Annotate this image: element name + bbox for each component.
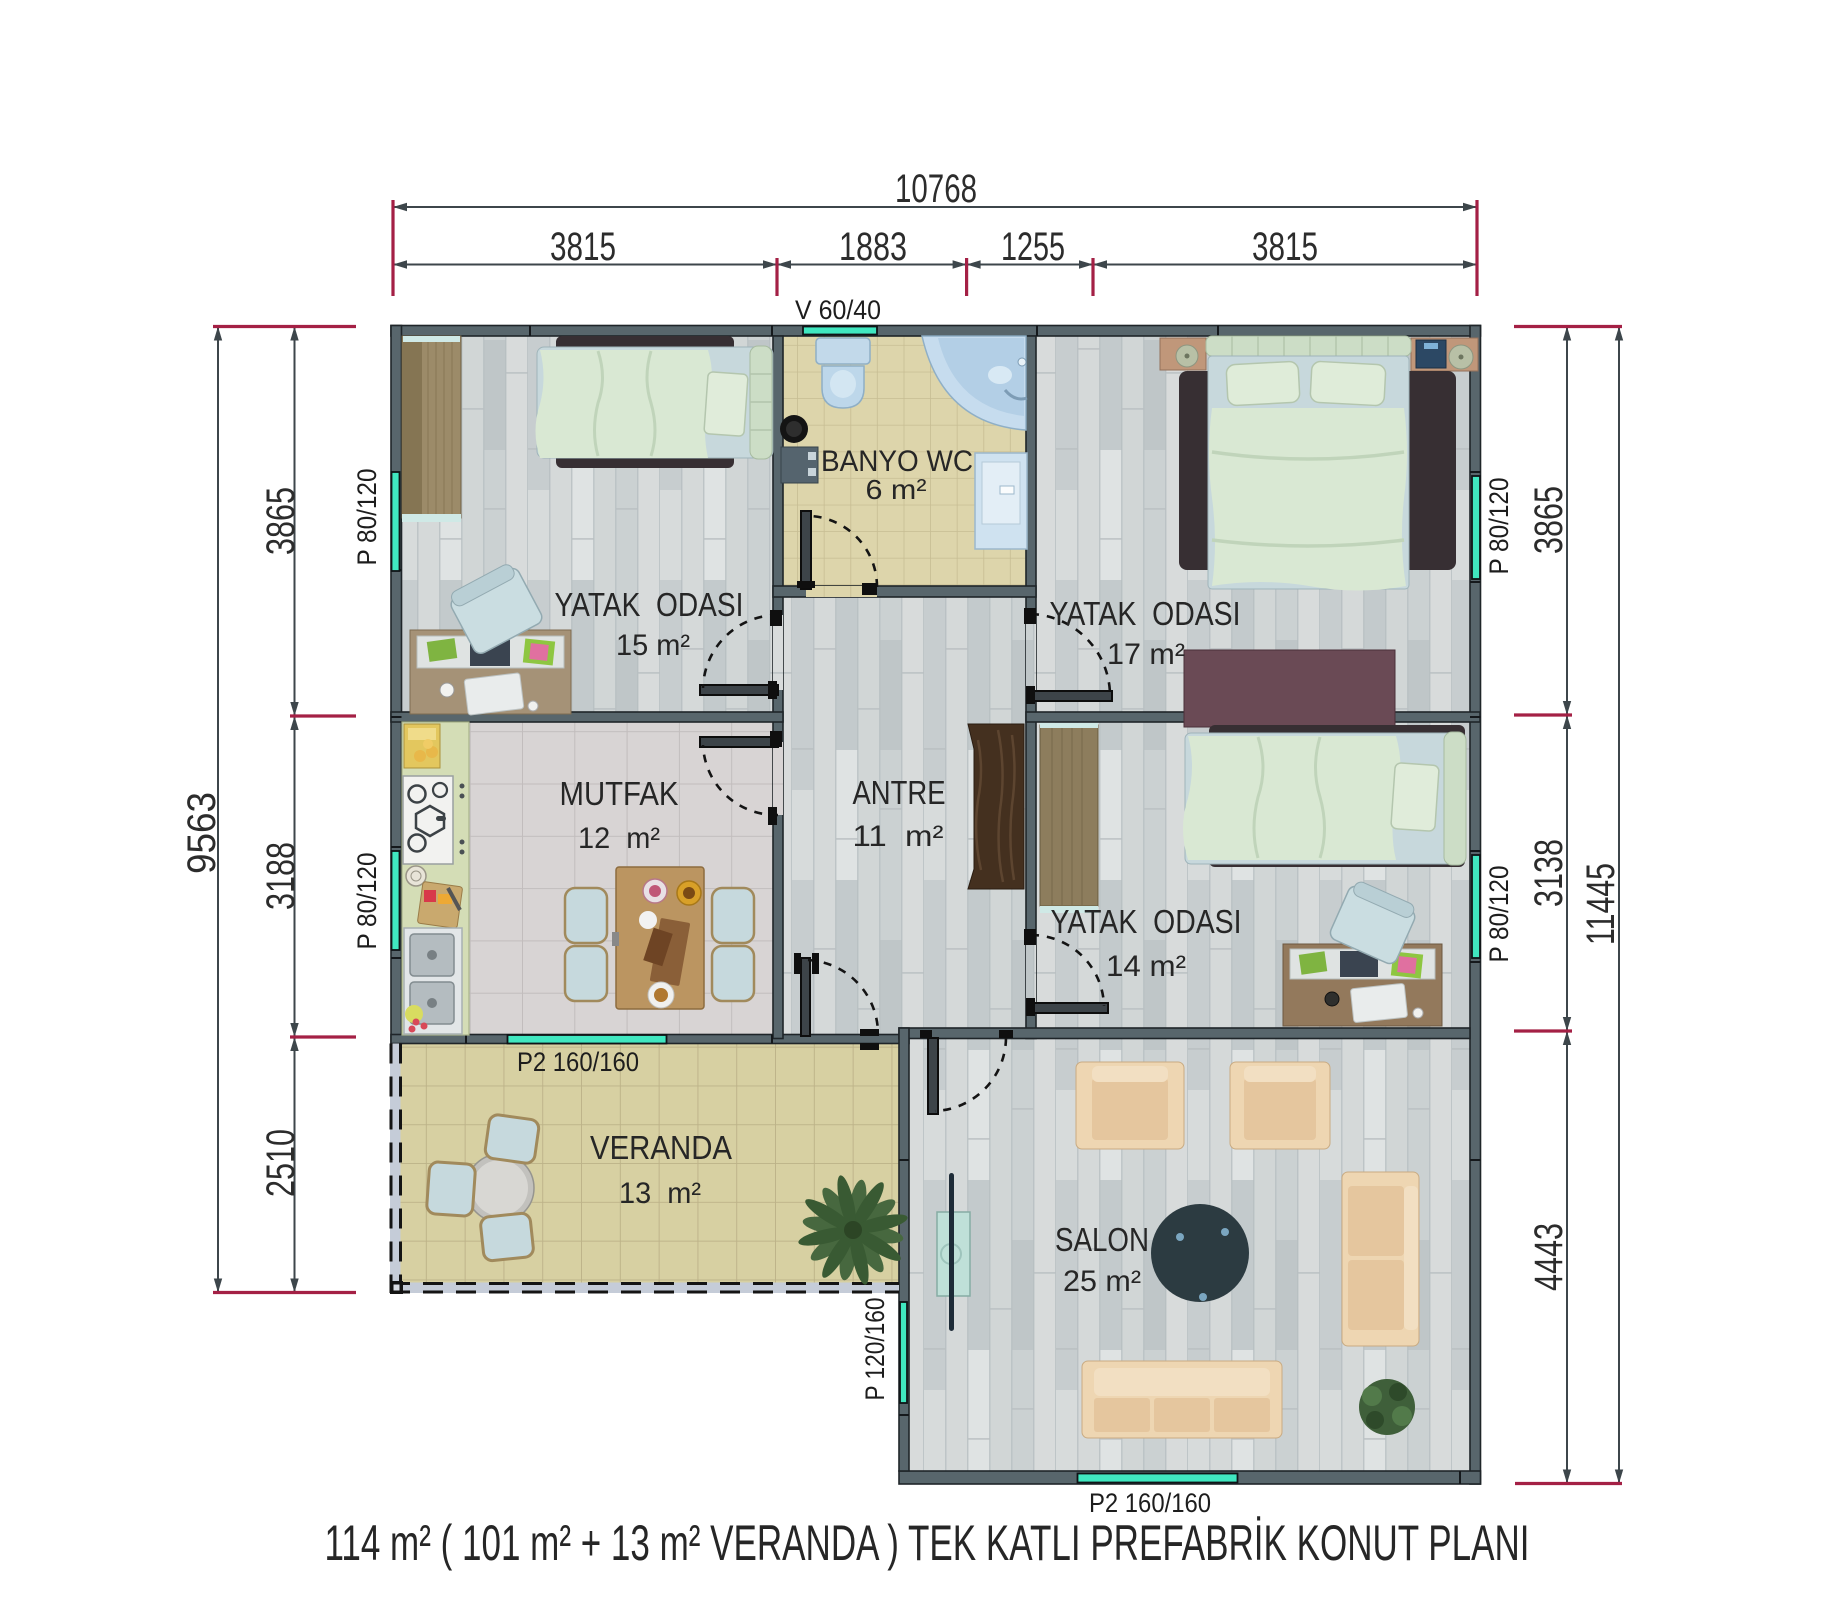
svg-text:15 m²: 15 m² (616, 629, 690, 662)
svg-text:ANTRE: ANTRE (853, 774, 946, 811)
svg-text:P 80/120: P 80/120 (352, 853, 382, 950)
svg-text:1255: 1255 (1001, 225, 1065, 269)
svg-text:11445: 11445 (1579, 863, 1623, 945)
svg-text:9563: 9563 (180, 792, 224, 874)
svg-text:4443: 4443 (1527, 1223, 1571, 1291)
svg-text:2510: 2510 (259, 1129, 303, 1197)
svg-text:P 80/120: P 80/120 (1484, 478, 1514, 575)
svg-text:10768: 10768 (895, 167, 977, 211)
svg-text:12 m²: 12 m² (578, 822, 660, 855)
svg-text:3865: 3865 (259, 487, 303, 555)
svg-text:3865: 3865 (1527, 486, 1571, 554)
svg-text:MUTFAK: MUTFAK (560, 775, 679, 812)
svg-text:P 80/120: P 80/120 (1484, 866, 1514, 963)
svg-text:13 m²: 13 m² (619, 1177, 701, 1210)
svg-text:3138: 3138 (1527, 839, 1571, 907)
svg-text:YATAK ODASI: YATAK ODASI (1051, 903, 1242, 940)
svg-text:25 m²: 25 m² (1063, 1265, 1141, 1298)
svg-text:14 m²: 14 m² (1106, 950, 1186, 983)
svg-text:1883: 1883 (839, 225, 907, 269)
svg-text:6 m²: 6 m² (866, 474, 927, 505)
svg-text:11 m²: 11 m² (853, 820, 944, 853)
svg-text:3188: 3188 (259, 842, 303, 910)
svg-text:SALON: SALON (1055, 1221, 1149, 1258)
svg-text:P2 160/160: P2 160/160 (517, 1047, 639, 1077)
svg-text:P 120/160: P 120/160 (860, 1298, 890, 1401)
svg-text:YATAK ODASI: YATAK ODASI (1050, 595, 1241, 632)
svg-text:P 80/120: P 80/120 (352, 469, 382, 566)
svg-text:YATAK ODASI: YATAK ODASI (555, 586, 744, 623)
svg-text:V 60/40: V 60/40 (795, 295, 881, 325)
svg-text:P2 160/160: P2 160/160 (1089, 1488, 1211, 1518)
svg-text:3815: 3815 (550, 225, 616, 269)
svg-text:3815: 3815 (1252, 225, 1318, 269)
svg-text:114 m² ( 101 m² + 13 m² VERA: 114 m² ( 101 m² + 13 m² VERANDA ) TEK KA… (325, 1515, 1530, 1571)
svg-text:17 m²: 17 m² (1107, 638, 1185, 671)
svg-text:VERANDA: VERANDA (590, 1129, 732, 1166)
